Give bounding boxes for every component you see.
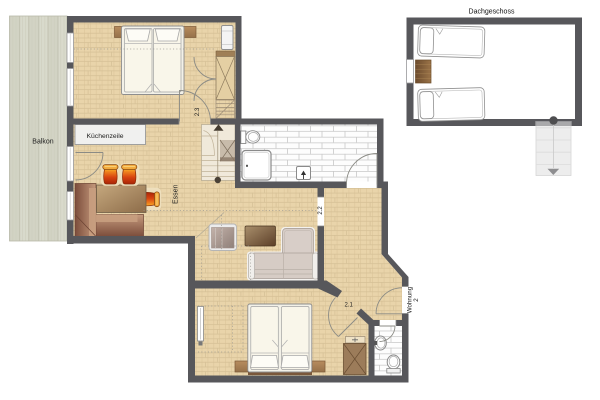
svg-text:Essen: Essen <box>173 184 180 204</box>
svg-text:Küchenzeile: Küchenzeile <box>86 133 123 140</box>
svg-text:2.1: 2.1 <box>345 303 354 309</box>
svg-text:Dachgeschoss: Dachgeschoss <box>469 9 515 16</box>
svg-text:Balkon: Balkon <box>32 139 54 146</box>
svg-text:2.3: 2.3 <box>195 107 201 116</box>
svg-text:2: 2 <box>413 298 420 302</box>
svg-text:2.2: 2.2 <box>318 206 324 215</box>
